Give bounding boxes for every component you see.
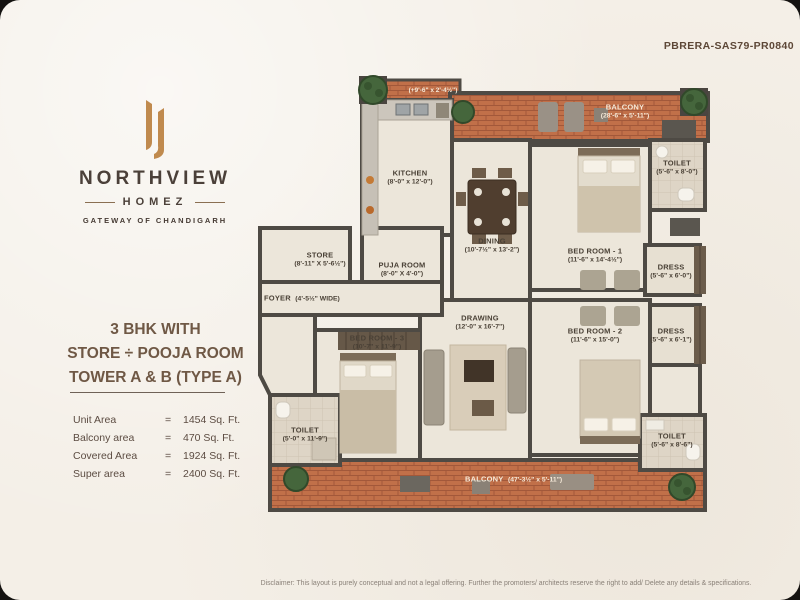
room-name: BED ROOM - 2 xyxy=(568,327,623,337)
room-label-balcony-top: BALCONY (28'-6" x 5'-11") xyxy=(601,103,650,122)
area-label: Super area xyxy=(73,468,165,480)
room-dims: (11'-6" x 15'-0") xyxy=(568,336,623,345)
disclaimer-text: Disclaimer: This layout is purely concep… xyxy=(256,580,756,587)
room-dims: (10'-7" x 11'-9") xyxy=(350,343,405,352)
room-dims: (5'-6" x 8'-6") xyxy=(651,441,692,450)
room-label-dining: DINING (10'-7½" x 13'-2") xyxy=(465,237,520,256)
area-row-super: Super area = 2400 Sq. Ft. xyxy=(73,468,251,480)
room-name: DRESS xyxy=(648,263,694,273)
equals-sign: = xyxy=(165,414,183,426)
room-name: BED ROOM - 1 xyxy=(568,247,623,257)
room-name: BALCONY xyxy=(465,475,503,484)
area-label: Unit Area xyxy=(73,414,165,426)
brand-block: NORTHVIEW HOMEZ GATEWAY OF CHANDIGARH xyxy=(55,98,255,225)
room-label-drawing: DRAWING (12'-0" x 16'-7") xyxy=(456,314,505,333)
room-dims: (4'-5½" WIDE) xyxy=(295,296,340,303)
rera-number: PBRERA-SAS79-PR0840 xyxy=(664,40,794,52)
room-dims: (10'-7½" x 13'-2") xyxy=(465,246,520,255)
room-name: FOYER xyxy=(264,294,291,303)
room-dims: (8'-11" X 5'-6½") xyxy=(294,260,345,269)
room-label-bedroom-1: BED ROOM - 1 (11'-6" x 14'-4½") xyxy=(568,247,623,266)
room-name: BED ROOM - 3 xyxy=(350,334,405,344)
room-name: STORE xyxy=(294,251,345,261)
area-value: 470 Sq. Ft. xyxy=(183,432,251,444)
room-dims: (5'-6" x 8'-0") xyxy=(656,168,697,177)
room-label-puja-room: PUJA ROOM (8'-0" X 4'-0") xyxy=(379,261,426,280)
room-label-store: STORE (8'-11" X 5'-6½") xyxy=(294,251,345,270)
room-name: DINING xyxy=(465,237,520,247)
unit-title: 3 BHK WITH STORE ÷ POOJA ROOM TOWER A & … xyxy=(48,318,263,390)
room-dims: (28'-6" x 5'-11") xyxy=(601,112,650,121)
room-dims: (11'-6" x 14'-4½") xyxy=(568,256,623,265)
left-rule xyxy=(85,202,115,203)
room-label-dress-2: DRESS (5'-6" x 6'-1") xyxy=(648,327,694,346)
room-name: TOILET xyxy=(656,159,697,169)
room-label-kitchen: KITCHEN (8'-0" x 12'-0") xyxy=(387,169,432,188)
brand-tagline: GATEWAY OF CHANDIGARH xyxy=(55,216,255,225)
northview-monogram-icon xyxy=(131,98,179,160)
room-name: DRAWING xyxy=(456,314,505,324)
brand-name: NORTHVIEW xyxy=(55,168,255,190)
equals-sign: = xyxy=(165,432,183,444)
room-name: DRESS xyxy=(648,327,694,337)
room-label-bedroom-3: BED ROOM - 3 (10'-7" x 11'-9") xyxy=(350,334,405,353)
title-divider xyxy=(70,392,225,393)
room-dims: (8'-0" X 4'-0") xyxy=(379,270,426,279)
area-row-balcony: Balcony area = 470 Sq. Ft. xyxy=(73,432,251,444)
room-label-bedroom-2: BED ROOM - 2 (11'-6" x 15'-0") xyxy=(568,327,623,346)
room-label-dress-1: DRESS (5'-6" x 6'-0") xyxy=(648,263,694,282)
area-row-unit: Unit Area = 1454 Sq. Ft. xyxy=(73,414,251,426)
room-label-toilet-1: TOILET (5'-6" x 8'-0") xyxy=(656,159,697,178)
floorplan: (+9'-6" x 2'-4½") BALCONY (28'-6" x 5'-1… xyxy=(250,60,712,520)
right-rule xyxy=(195,202,225,203)
brand-subname-row: HOMEZ xyxy=(55,196,255,208)
area-label: Covered Area xyxy=(73,450,165,462)
room-name: PUJA ROOM xyxy=(379,261,426,271)
room-label-balcony-bottom: BALCONY (47'-3½" x 5'-11") xyxy=(465,468,562,489)
room-dims: (+9'-6" x 2'-4½") xyxy=(409,87,458,95)
area-row-covered: Covered Area = 1924 Sq. Ft. xyxy=(73,450,251,462)
room-label-top-strip: (+9'-6" x 2'-4½") xyxy=(409,87,458,95)
room-dims: (47'-3½" x 5'-11") xyxy=(508,477,562,484)
room-dims: (12'-0" x 16'-7") xyxy=(456,323,505,332)
unit-title-line3: TOWER A & B (TYPE A) xyxy=(48,366,263,390)
area-value: 1454 Sq. Ft. xyxy=(183,414,251,426)
unit-title-line2: STORE ÷ POOJA ROOM xyxy=(48,342,263,366)
room-dims: (5'-0" x 11'-9") xyxy=(283,435,328,444)
room-label-toilet-2: TOILET (5'-0" x 11'-9") xyxy=(283,426,328,445)
area-table: Unit Area = 1454 Sq. Ft. Balcony area = … xyxy=(73,414,251,486)
room-name: BALCONY xyxy=(601,103,650,113)
unit-title-line1: 3 BHK WITH xyxy=(48,318,263,342)
area-value: 2400 Sq. Ft. xyxy=(183,468,251,480)
room-name: TOILET xyxy=(283,426,328,436)
room-dims: (5'-6" x 6'-0") xyxy=(648,272,694,281)
area-value: 1924 Sq. Ft. xyxy=(183,450,251,462)
floorplan-poster: PBRERA-SAS79-PR0840 NORTHVIEW HOMEZ GATE… xyxy=(0,0,800,600)
room-label-foyer: FOYER (4'-5½" WIDE) xyxy=(264,287,340,308)
equals-sign: = xyxy=(165,450,183,462)
brand-subname: HOMEZ xyxy=(123,196,188,208)
room-dims: (8'-0" x 12'-0") xyxy=(387,178,432,187)
room-name: KITCHEN xyxy=(387,169,432,179)
equals-sign: = xyxy=(165,468,183,480)
room-label-toilet-3: TOILET (5'-6" x 8'-6") xyxy=(651,432,692,451)
area-label: Balcony area xyxy=(73,432,165,444)
room-name: TOILET xyxy=(651,432,692,442)
room-dims: (5'-6" x 6'-1") xyxy=(648,336,694,345)
